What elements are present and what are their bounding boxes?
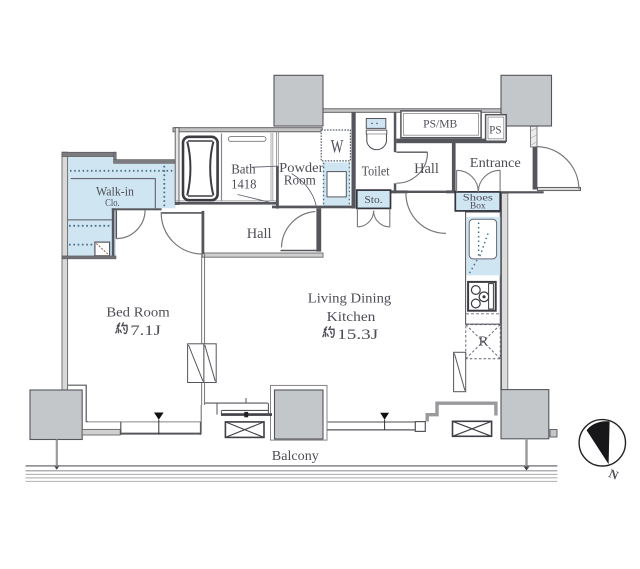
- svg-text:Sto.: Sto.: [364, 195, 382, 206]
- svg-text:15.3J: 15.3J: [337, 327, 378, 343]
- svg-text:1418: 1418: [231, 178, 256, 193]
- svg-text:Hall: Hall: [414, 161, 439, 177]
- svg-text:Bath: Bath: [231, 163, 255, 178]
- svg-text:Room: Room: [284, 173, 317, 188]
- svg-text:Bed Room: Bed Room: [106, 306, 169, 321]
- svg-text:PS: PS: [489, 124, 502, 136]
- svg-text:W: W: [331, 137, 344, 157]
- svg-text:R: R: [479, 335, 489, 350]
- svg-text:Hall: Hall: [247, 226, 272, 242]
- svg-text:Entrance: Entrance: [470, 155, 521, 170]
- svg-text:Clo.: Clo.: [105, 198, 120, 209]
- svg-text:Box: Box: [470, 201, 486, 211]
- svg-text:Toilet: Toilet: [362, 164, 390, 179]
- svg-text:Living Dining: Living Dining: [308, 291, 392, 306]
- svg-text:Kitchen: Kitchen: [327, 310, 376, 325]
- svg-text:7.1J: 7.1J: [130, 323, 161, 339]
- svg-text:Balcony: Balcony: [272, 449, 319, 464]
- svg-text:PS/MB: PS/MB: [423, 117, 457, 131]
- svg-text:Walk-in: Walk-in: [96, 184, 135, 198]
